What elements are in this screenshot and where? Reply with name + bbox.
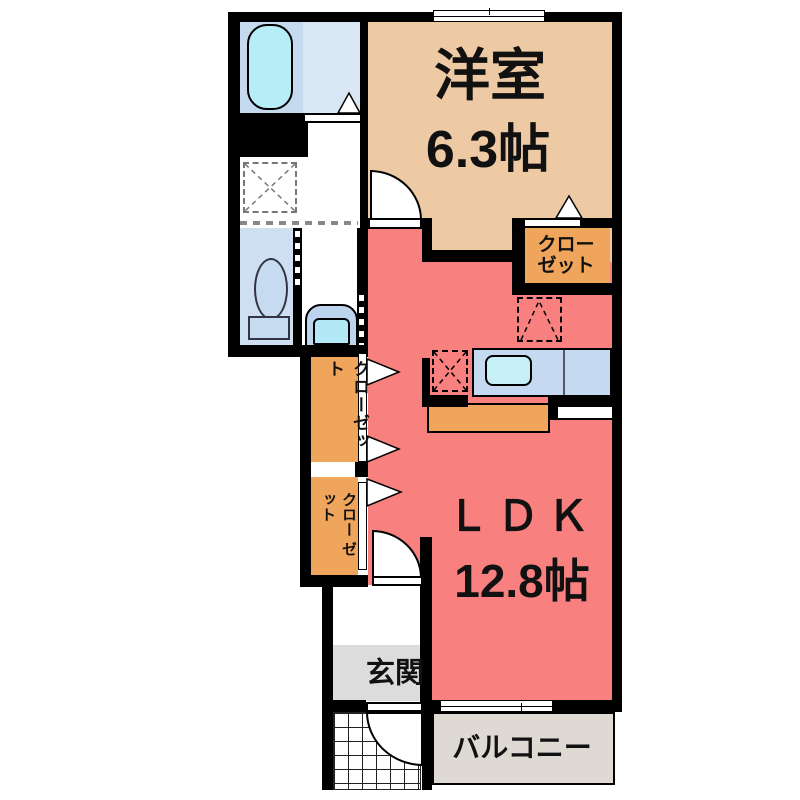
bathtub [247,24,293,110]
bedroom-window [433,10,545,22]
floorplan: 洋室 6.3帖 クロー ゼット クローゼット クロー ゼット ＬＤＫ 12.8帖… [0,0,800,800]
bedroom-door-leaf [368,218,422,229]
hall-closet-lower-col1: クロー [340,492,357,537]
refrigerator-space [517,297,562,342]
bedroom-label: 洋室 [434,46,546,106]
entrance-hall-floor [333,585,420,645]
washer-space-cross-icon [434,352,466,390]
bedroom-size-label: 6.3帖 [426,122,550,178]
wall-bedroom-closet-bottom [512,283,622,295]
hall-closet-lower-door [358,482,367,570]
wall-kitchen-horiz [422,395,468,407]
window-rail [434,16,544,17]
wall-entrance-bottom-left [322,700,366,712]
refrigerator-space-mark-icon [519,299,560,340]
bedroom-closet-door-marker-icon [556,196,582,218]
wall-hall-closet-bottom [300,575,368,587]
sliding-door-toilet [295,231,300,286]
wall-entrance-left [322,587,333,790]
ldk-label: ＬＤＫ [447,493,597,538]
bedroom-closet-label-line2: ゼット [537,255,594,276]
hall-closet-lower-marker-icon [367,479,401,506]
ldk-door-leaf [372,576,423,586]
bath-door-marker-icon [338,93,360,113]
hall-closet-lower-label: クロー ゼット [317,492,359,562]
wall-bedroom-closet-top [582,218,612,228]
wall-bedroom-bottom [422,250,520,262]
bedroom-closet-door-leaf [523,218,582,228]
sliding-door-washroom [240,221,358,225]
wall-balcony-left [422,712,432,790]
kitchen-sink [485,355,532,386]
washer-space [432,350,468,392]
hall-closet-upper-label: クローゼット [322,360,372,462]
toilet-bowl [254,258,288,320]
ldk-size-label: 12.8帖 [454,557,590,607]
kitchen-cabinet [427,403,550,433]
wall-bath-block [228,113,308,157]
window-tick [521,703,522,711]
entrance-label: 玄関 [366,658,424,689]
wall-kitchen-right-opening [558,407,612,418]
window-tick [489,8,490,15]
laundry-machine-space [243,162,297,213]
bath-door-leaf [303,113,362,123]
toilet-tank [248,316,290,340]
entry-door-leaf [366,702,423,712]
wall-left [228,12,240,357]
laundry-space-cross-icon [245,164,295,211]
wall-hall-closet-mid [355,462,368,477]
wall-top [228,12,622,22]
wall-bedroom-door-stub [422,218,432,262]
balcony-window [440,700,553,712]
window-rail [441,706,552,707]
sliding-door-basinroom [359,295,364,345]
balcony-label: バルコニー [452,733,591,763]
bedroom-closet-label-line1: クロー [537,234,594,255]
washbasin-bowl [313,318,350,345]
wall-right [612,12,622,712]
bedroom-closet-label: クロー ゼット [537,235,594,276]
kitchen-counter-divider [563,350,565,395]
wall-hall-closet-left [300,345,311,587]
